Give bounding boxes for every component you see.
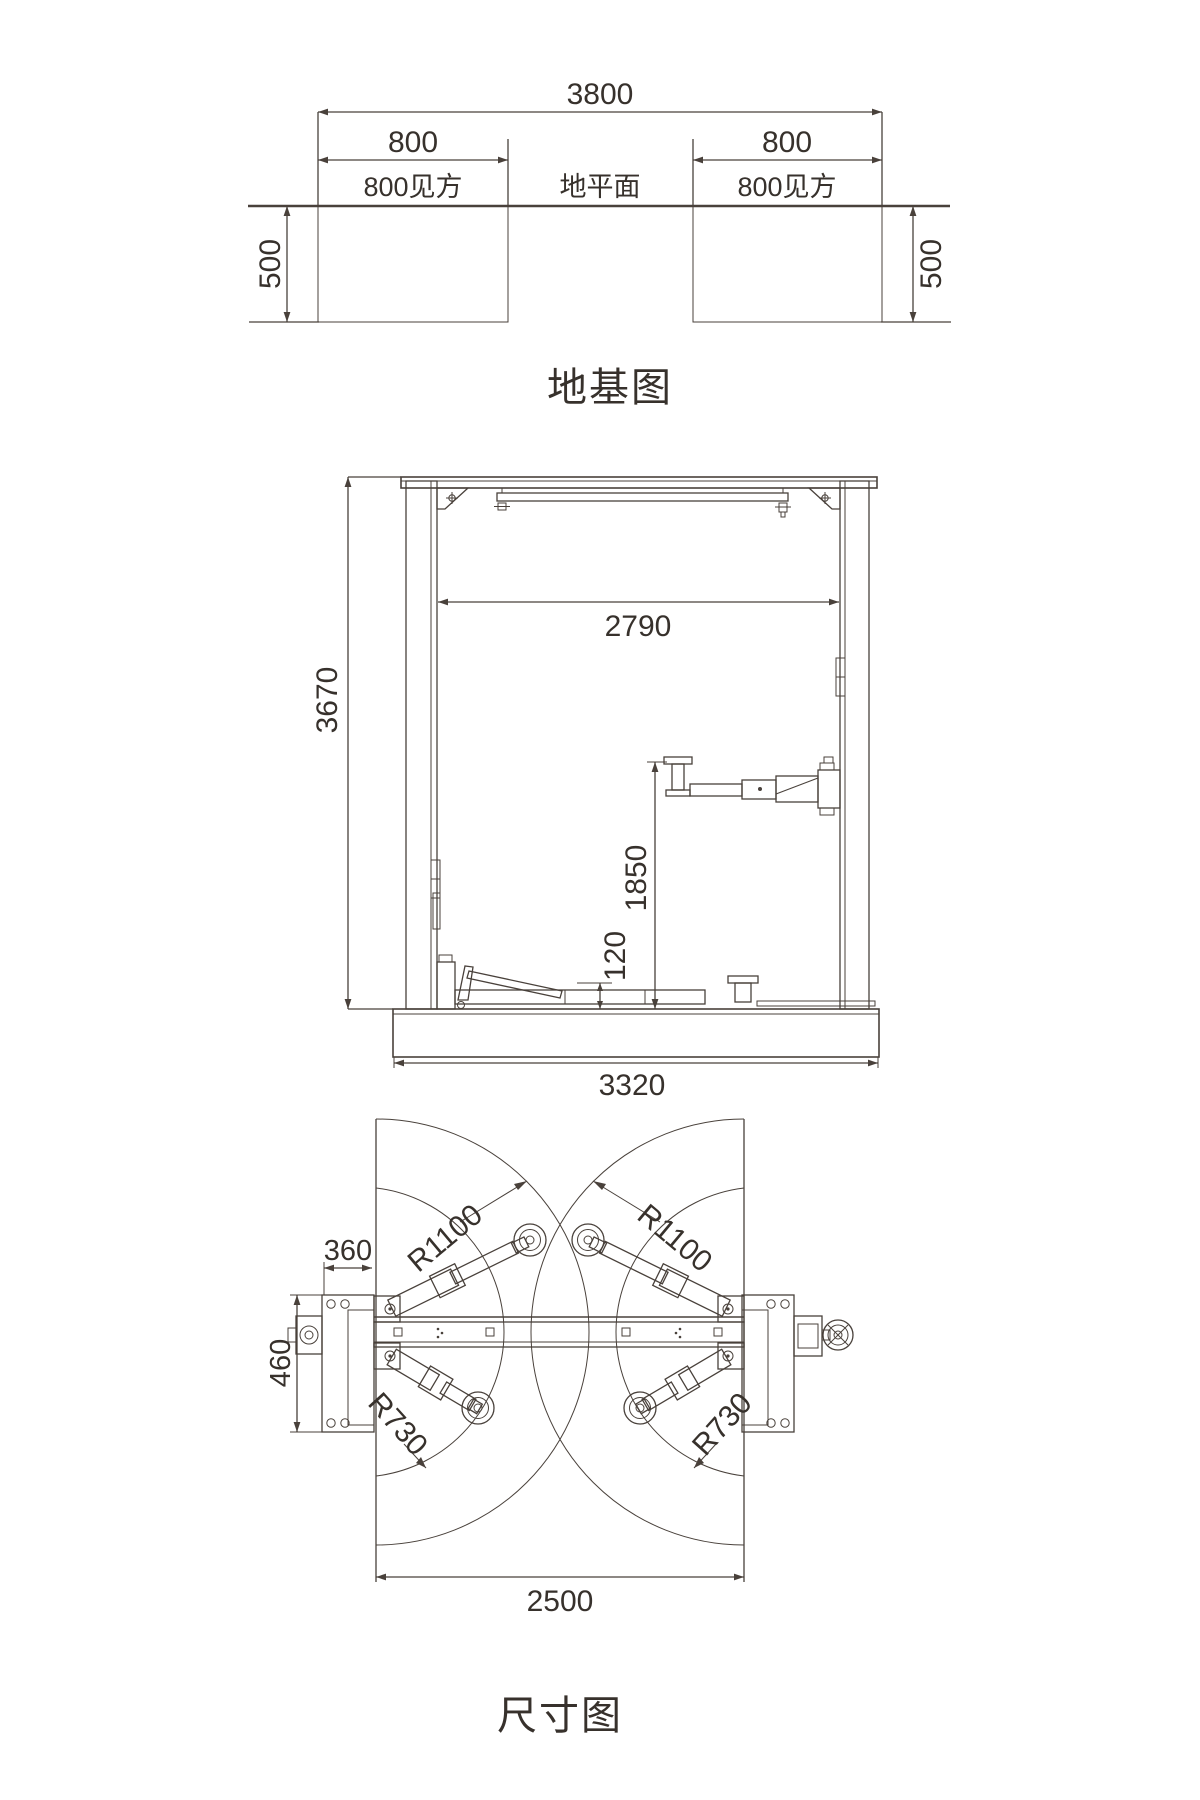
dim-label-3800: 3800 bbox=[567, 78, 634, 111]
dim-side-offset: 360 bbox=[324, 1235, 372, 1295]
radius-label-r1100-right: R1100 bbox=[593, 1181, 718, 1279]
crossbeam bbox=[348, 477, 877, 488]
lift-arm-lowered bbox=[433, 893, 875, 1009]
pad-note-left: 800见方 bbox=[363, 172, 462, 202]
light-bar bbox=[494, 488, 791, 517]
dim-drive-width: 2500 bbox=[376, 1574, 744, 1618]
pad-note-right: 800见方 bbox=[737, 172, 836, 202]
gusset-right bbox=[809, 488, 840, 509]
dim-label-3320: 3320 bbox=[599, 1069, 666, 1102]
dim-pad-left: 800 bbox=[318, 126, 508, 163]
foundation-title: 地基图 bbox=[547, 366, 673, 410]
dim-label-120: 120 bbox=[599, 931, 632, 981]
radius-label-r730-right: R730 bbox=[686, 1387, 759, 1468]
dim-arm-lowered: 120 bbox=[577, 931, 632, 1009]
svg-text:R1100: R1100 bbox=[631, 1198, 718, 1279]
dim-label-360: 360 bbox=[324, 1235, 372, 1267]
dim-label-2790: 2790 bbox=[605, 610, 672, 643]
foundation-view: 3800 800 800 800见方 地平面 800见方 bbox=[248, 78, 951, 410]
dim-label-460: 460 bbox=[265, 1339, 297, 1387]
dim-label-1850: 1850 bbox=[620, 845, 653, 912]
gusset-left bbox=[437, 488, 468, 509]
dim-depth-right: 500 bbox=[881, 206, 951, 322]
technical-drawing-canvas: 3800 800 800 800见方 地平面 800见方 bbox=[0, 0, 1200, 1800]
lift-pad-rear-left bbox=[462, 1392, 494, 1424]
ground-level-label: 地平面 bbox=[560, 172, 641, 202]
svg-text:R730: R730 bbox=[361, 1387, 434, 1462]
dim-inner-width: 2790 bbox=[438, 599, 839, 643]
dim-label-2500: 2500 bbox=[527, 1585, 594, 1618]
radius-label-r730-left: R730 bbox=[361, 1387, 434, 1468]
lift-pad-rear-right bbox=[624, 1392, 656, 1424]
dim-depth-left: 500 bbox=[249, 206, 319, 322]
base-slab bbox=[393, 1009, 879, 1057]
dim-label-500-right: 500 bbox=[915, 239, 948, 289]
svg-text:R1100: R1100 bbox=[402, 1198, 489, 1279]
post-left bbox=[406, 481, 440, 1009]
drawing-page: 3800 800 800 800见方 地平面 800见方 bbox=[0, 0, 1200, 1800]
dim-base-width: 3320 bbox=[394, 1057, 878, 1102]
radius-label-r1100-left: R1100 bbox=[402, 1181, 527, 1279]
dim-total-width: 3800 bbox=[318, 78, 882, 115]
plan-view: R1100 R1100 R730 R730 360 bbox=[265, 1119, 853, 1738]
dim-label-800-right: 800 bbox=[762, 126, 812, 159]
concrete-pad-left bbox=[318, 206, 508, 322]
dim-total-height: 3670 bbox=[311, 477, 393, 1009]
swing-arc-r1100-left bbox=[376, 1119, 589, 1545]
dim-label-3670: 3670 bbox=[311, 667, 344, 734]
plan-title: 尺寸图 bbox=[497, 1694, 623, 1738]
concrete-pad-right bbox=[693, 206, 882, 322]
svg-text:R730: R730 bbox=[686, 1387, 759, 1462]
lift-arm-raised bbox=[664, 757, 840, 815]
post-right bbox=[836, 481, 869, 1009]
dim-label-500-left: 500 bbox=[254, 239, 287, 289]
swing-arc-r1100-right bbox=[531, 1119, 744, 1545]
elevation-view: 2790 3670 1850 120 bbox=[311, 477, 879, 1102]
dim-pad-right: 800 bbox=[693, 126, 882, 163]
plan-beam bbox=[374, 1317, 744, 1347]
dim-label-800-left: 800 bbox=[388, 126, 438, 159]
